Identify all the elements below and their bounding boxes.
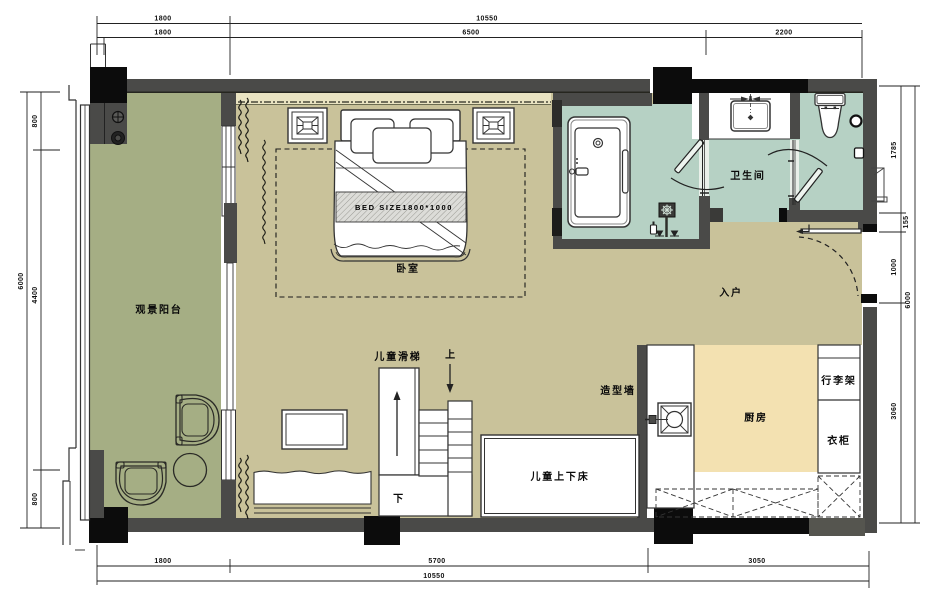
svg-text:1785: 1785 [891, 141, 898, 158]
svg-text:入户: 入户 [719, 286, 743, 299]
svg-text:BED SIZE1800*1000: BED SIZE1800*1000 [355, 203, 453, 212]
svg-text:10550: 10550 [423, 573, 444, 580]
svg-text:10550: 10550 [476, 16, 497, 23]
svg-text:3050: 3050 [748, 558, 765, 565]
svg-text:厨房: 厨房 [744, 411, 768, 424]
svg-text:行李架: 行李架 [820, 374, 856, 387]
svg-text:卫生间: 卫生间 [730, 169, 765, 182]
svg-text:2200: 2200 [775, 30, 792, 37]
svg-text:儿童滑梯: 儿童滑梯 [373, 350, 421, 363]
svg-text:6000: 6000 [905, 291, 912, 308]
svg-text:观景阳台: 观景阳台 [135, 303, 182, 316]
svg-text:155: 155 [903, 216, 910, 229]
svg-text:衣柜: 衣柜 [827, 434, 851, 447]
svg-text:4400: 4400 [32, 286, 39, 303]
svg-text:1800: 1800 [154, 16, 171, 23]
svg-text:卧室: 卧室 [396, 262, 420, 275]
svg-text:上: 上 [445, 348, 457, 361]
svg-text:造型墙: 造型墙 [600, 384, 635, 397]
svg-text:800: 800 [32, 493, 39, 506]
svg-text:1800: 1800 [154, 30, 171, 37]
svg-text:3060: 3060 [891, 402, 898, 419]
svg-text:6500: 6500 [462, 30, 479, 37]
svg-text:儿童上下床: 儿童上下床 [530, 470, 590, 483]
svg-text:5700: 5700 [428, 558, 445, 565]
svg-text:6000: 6000 [18, 272, 25, 289]
svg-text:800: 800 [32, 115, 39, 128]
svg-text:1000: 1000 [891, 258, 898, 275]
svg-text:下: 下 [393, 493, 405, 505]
svg-text:1800: 1800 [154, 558, 171, 565]
